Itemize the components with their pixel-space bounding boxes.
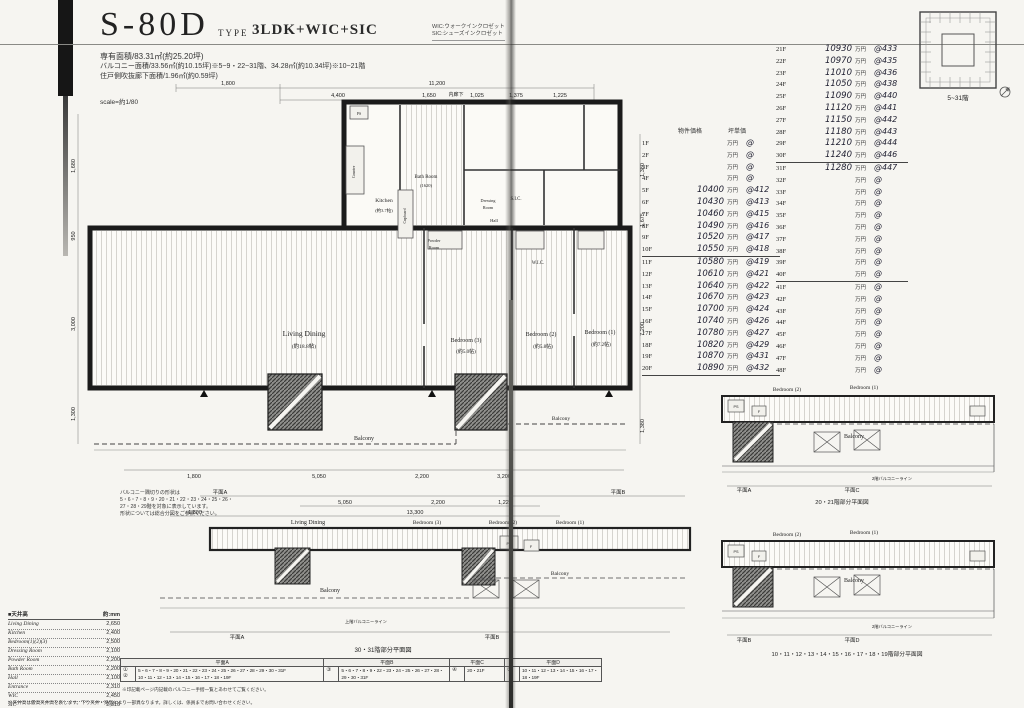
plane-b-mark: ③ bbox=[324, 667, 339, 682]
floor-label: 36F bbox=[776, 224, 798, 231]
plane-a-floors: 5・6・7・8・9・20・21・22・23・24・25・26・27・28・29・… bbox=[136, 667, 324, 682]
price-value: 11150 bbox=[798, 115, 855, 125]
currency-label: 万円 bbox=[727, 186, 746, 194]
tsubo-unit-price: @419 bbox=[746, 257, 780, 266]
plane-c-floors: 20・21F bbox=[465, 667, 505, 682]
floor-label: 45F bbox=[776, 331, 798, 338]
tsubo-unit-price: @444 bbox=[874, 138, 908, 147]
tsubo-unit-price: @431 bbox=[746, 351, 780, 360]
price-value: 10490 bbox=[664, 221, 727, 231]
price-value: 10520 bbox=[664, 232, 727, 242]
price-value: 10400 bbox=[664, 185, 727, 195]
svg-text:1,225: 1,225 bbox=[553, 93, 567, 99]
ceiling-room-name: Kitchen bbox=[8, 630, 25, 636]
ceiling-table-header: ■天井高 約:mm bbox=[8, 610, 120, 620]
currency-label: 万円 bbox=[855, 258, 874, 266]
floor-label: 26F bbox=[776, 105, 798, 112]
tsubo-unit-price: @ bbox=[874, 282, 908, 291]
currency-label: 万円 bbox=[727, 305, 746, 313]
price-row: 1F 万円 @ bbox=[642, 138, 780, 150]
bedroom2-label: Bedroom (2) bbox=[526, 331, 557, 338]
floor-label: 30F bbox=[776, 152, 798, 159]
price-row: 25F 11090 万円 @440 bbox=[776, 91, 908, 103]
tsubo-unit-price: @ bbox=[874, 341, 908, 350]
currency-label: 万円 bbox=[855, 270, 874, 278]
currency-label: 万円 bbox=[727, 341, 746, 349]
svg-text:5,050: 5,050 bbox=[338, 500, 352, 506]
ps-label: PS bbox=[733, 405, 739, 409]
price-row: 9F 10520 万円 @417 bbox=[642, 232, 780, 244]
svg-text:平面B: 平面B bbox=[611, 489, 626, 496]
ceiling-room-name: Dressing Room bbox=[8, 648, 42, 654]
main-floor-plan: 1,800 11,200 4,400 1,650 1,025 1,375 1,2… bbox=[64, 74, 648, 494]
price-row: 4F 万円 @ bbox=[642, 173, 780, 185]
currency-label: 万円 bbox=[727, 151, 746, 159]
floor-label: 28F bbox=[776, 129, 798, 136]
balcony-label-right: Balcony bbox=[552, 416, 571, 422]
price-row: 39F 万円 @ bbox=[776, 257, 908, 269]
price-row: 13F 10640 万円 @422 bbox=[642, 281, 780, 293]
compass-icon bbox=[1000, 87, 1010, 97]
corridor-label: 内廊下 bbox=[448, 91, 463, 98]
tsubo-unit-price: @ bbox=[746, 138, 780, 147]
partial-plan-caption: 30・31階部分平面図 bbox=[354, 646, 411, 654]
plan-code-title: S-80D bbox=[100, 6, 209, 44]
currency-label: 万円 bbox=[855, 235, 874, 243]
floor-label: 47F bbox=[776, 355, 798, 362]
tsubo-unit-price: @ bbox=[874, 246, 908, 255]
tsubo-unit-price: @426 bbox=[746, 316, 780, 325]
price-row: 16F 10740 万円 @426 bbox=[642, 316, 780, 328]
counter-label: Counter bbox=[352, 165, 356, 178]
tsubo-unit-price: @ bbox=[874, 222, 908, 231]
bedroom3-label: Bedroom (3) bbox=[451, 337, 482, 344]
price-value: 10430 bbox=[664, 197, 727, 207]
ceiling-room-name: Hall bbox=[8, 675, 18, 681]
currency-label: 万円 bbox=[727, 293, 746, 301]
svg-text:950: 950 bbox=[71, 231, 77, 240]
price-value: 10970 bbox=[798, 56, 855, 66]
floor-label: 24F bbox=[776, 81, 798, 88]
price-row: 46F 万円 @ bbox=[776, 341, 908, 353]
tsubo-unit-price: @ bbox=[874, 210, 908, 219]
currency-label: 万円 bbox=[855, 247, 874, 255]
svg-text:11,200: 11,200 bbox=[429, 81, 445, 87]
wic-label: W.I.C. bbox=[532, 261, 544, 266]
bedroom2-size: (約5.8帖) bbox=[533, 343, 553, 350]
price-value: 11120 bbox=[798, 103, 855, 113]
currency-label: 万円 bbox=[727, 210, 746, 218]
dressing-room-label2: Room bbox=[483, 205, 494, 210]
currency-label: 万円 bbox=[855, 295, 874, 303]
price-row: 37F 万円 @ bbox=[776, 234, 908, 246]
bathroom-label: Bath Room bbox=[415, 175, 438, 180]
svg-text:Bedroom (1): Bedroom (1) bbox=[850, 384, 878, 391]
svg-text:Bedroom (3): Bedroom (3) bbox=[413, 519, 441, 526]
currency-label: 万円 bbox=[855, 199, 874, 207]
currency-label: 万円 bbox=[727, 139, 746, 147]
tsubo-unit-price: @413 bbox=[746, 197, 780, 206]
currency-label: 万円 bbox=[727, 364, 746, 372]
price-row: 8F 10490 万円 @416 bbox=[642, 221, 780, 233]
circled-number: ② bbox=[123, 673, 131, 679]
floor-label: 34F bbox=[776, 200, 798, 207]
currency-label: 万円 bbox=[855, 92, 874, 100]
currency-label: 万円 bbox=[727, 258, 746, 266]
ceiling-height-value: 2,400 bbox=[106, 630, 120, 636]
currency-label: 万円 bbox=[727, 233, 746, 241]
price-row: 45F 万円 @ bbox=[776, 329, 908, 341]
exclusive-area: 専有面積/83.31㎡(約25.20坪) bbox=[100, 52, 365, 62]
partial-plan-20-21: Bedroom (2) Bedroom (1) Balcony PS F 2階バ… bbox=[702, 380, 1020, 516]
svg-text:Bedroom (2): Bedroom (2) bbox=[773, 386, 801, 393]
ceiling-row: Powder Room 2,200 bbox=[8, 657, 120, 666]
currency-label: 万円 bbox=[727, 174, 746, 182]
ceiling-height-value: 2,100 bbox=[106, 675, 120, 681]
plane-a-marks: ① ② bbox=[121, 667, 136, 682]
ceiling-table-unit: 約:mm bbox=[103, 610, 120, 618]
tsubo-unit-price: @ bbox=[746, 150, 780, 159]
price-row: 30F 11240 万円 @446 bbox=[776, 150, 908, 163]
tsubo-unit-price: @418 bbox=[746, 244, 780, 253]
price-row: 19F 10870 万円 @431 bbox=[642, 351, 780, 363]
powder-room-label: Powder bbox=[428, 238, 441, 243]
floor-label: 44F bbox=[776, 319, 798, 326]
powder-room-label2: Room bbox=[429, 245, 440, 250]
price-row: 36F 万円 @ bbox=[776, 222, 908, 234]
svg-text:平面A: 平面A bbox=[737, 487, 752, 494]
sic-legend-line: SIC:シューズインクロゼット bbox=[432, 31, 505, 38]
site-key-plan: 5~31階 bbox=[896, 4, 1020, 110]
tsubo-unit-price: @421 bbox=[746, 269, 780, 278]
price-value: 10700 bbox=[664, 304, 727, 314]
currency-label: 万円 bbox=[855, 354, 874, 362]
price-row: 14F 10670 万円 @423 bbox=[642, 292, 780, 304]
currency-label: 万円 bbox=[855, 80, 874, 88]
price-row: 15F 10700 万円 @424 bbox=[642, 304, 780, 316]
currency-label: 万円 bbox=[855, 164, 874, 172]
wall-marker-triangles bbox=[200, 390, 613, 397]
price-row: 11F 10580 万円 @419 bbox=[642, 257, 780, 269]
price-row: 10F 10550 万円 @418 bbox=[642, 244, 780, 257]
tsubo-unit-price: @ bbox=[874, 306, 908, 315]
svg-text:1,650: 1,650 bbox=[422, 93, 436, 99]
partial-plan-30-31: 平面A 平面B 5,050 2,200 1,225 1,800 13,300 L… bbox=[140, 486, 700, 658]
ceiling-room-name: Entrance bbox=[8, 684, 28, 690]
partial-wall-band bbox=[210, 528, 690, 550]
svg-text:Living Dining: Living Dining bbox=[291, 520, 325, 526]
page-fold-shadow bbox=[509, 300, 513, 708]
ps-label: PS bbox=[733, 550, 739, 554]
bathroom-size: (1620) bbox=[420, 183, 432, 188]
svg-text:7,200: 7,200 bbox=[640, 322, 646, 336]
ceiling-height-value: 2,100 bbox=[106, 648, 120, 654]
currency-label: 万円 bbox=[855, 139, 874, 147]
price-row: 26F 11120 万円 @441 bbox=[776, 103, 908, 115]
tsubo-unit-price: @422 bbox=[746, 281, 780, 290]
balcony-pillar bbox=[733, 422, 773, 462]
site-inner-core bbox=[942, 34, 974, 66]
svg-text:1,380: 1,380 bbox=[640, 163, 646, 177]
currency-label: 万円 bbox=[855, 69, 874, 77]
balcony-line-note: 2階バルコニーライン bbox=[872, 475, 912, 482]
plane-b-header: 平面B bbox=[324, 659, 450, 667]
price-table-header: 物件価格 坪単価 bbox=[642, 126, 780, 135]
ceiling-row: Dressing Room 2,100 bbox=[8, 648, 120, 657]
svg-text:1,300: 1,300 bbox=[71, 407, 77, 421]
tsubo-unit-price: @438 bbox=[874, 79, 908, 88]
price-value: 10930 bbox=[798, 44, 855, 54]
tsubo-unit-price: @ bbox=[874, 365, 908, 374]
partial-bottom-plane-labels: 平面A 平面C bbox=[737, 487, 860, 494]
price-value: 10460 bbox=[664, 209, 727, 219]
currency-label: 万円 bbox=[855, 128, 874, 136]
price-row: 35F 万円 @ bbox=[776, 210, 908, 222]
price-value: 10780 bbox=[664, 328, 727, 338]
svg-text:2,200: 2,200 bbox=[415, 474, 429, 480]
floor-label: 35F bbox=[776, 212, 798, 219]
plane-d-header: 平面D bbox=[505, 659, 602, 667]
bedroom3-size: (約5.0帖) bbox=[456, 348, 476, 355]
price-row: 24F 11050 万円 @438 bbox=[776, 79, 908, 91]
tsubo-unit-price: @ bbox=[746, 173, 780, 182]
price-value: 10550 bbox=[664, 244, 727, 254]
price-value: 10820 bbox=[664, 340, 727, 350]
partial-bottom-plane-labels: 平面A 平面B bbox=[230, 634, 500, 641]
price-value: 10890 bbox=[664, 363, 727, 373]
living-dining-label: Living Dining bbox=[283, 329, 326, 338]
tsubo-unit-price: @ bbox=[874, 317, 908, 326]
svg-text:1,025: 1,025 bbox=[470, 93, 484, 99]
ceiling-height-value: 2,650 bbox=[106, 621, 120, 627]
svg-text:平面C: 平面C bbox=[845, 487, 860, 494]
ps-label: PS bbox=[357, 112, 361, 116]
currency-label: 万円 bbox=[727, 222, 746, 230]
living-dining-size: (約18.8帖) bbox=[292, 342, 316, 350]
price-rows-left: 1F 万円 @ 2F 万円 @ 3F 万円 @ bbox=[642, 138, 780, 376]
price-row: 41F 万円 @ bbox=[776, 282, 908, 294]
wic-legend-line: WIC:ウォークインクロゼット bbox=[432, 24, 505, 31]
ceiling-room-name: WIC bbox=[8, 693, 18, 699]
price-value: 10610 bbox=[664, 269, 727, 279]
tsubo-unit-price: @412 bbox=[746, 185, 780, 194]
plane-d-floors: 10・11・12・13・14・15・16・17・18・19F bbox=[520, 667, 602, 682]
svg-text:1,680: 1,680 bbox=[71, 159, 77, 173]
plane-c-mark: ④ bbox=[450, 667, 465, 682]
svg-text:1,800: 1,800 bbox=[221, 81, 235, 87]
price-header-label: 物件価格 bbox=[678, 126, 702, 135]
currency-label: 万円 bbox=[727, 352, 746, 360]
tsubo-unit-price: @ bbox=[874, 329, 908, 338]
tsubo-unit-price: @ bbox=[874, 175, 908, 184]
currency-label: 万円 bbox=[727, 163, 746, 171]
price-rows-right: 21F 10930 万円 @433 22F 10970 万円 @435 23F … bbox=[776, 44, 908, 376]
currency-label: 万円 bbox=[855, 188, 874, 196]
svg-text:Balcony: Balcony bbox=[551, 571, 570, 577]
floor-label: 38F bbox=[776, 248, 798, 255]
price-row: 6F 10430 万円 @413 bbox=[642, 197, 780, 209]
currency-label: 万円 bbox=[855, 342, 874, 350]
site-plan-caption: 5~31階 bbox=[947, 93, 969, 102]
svg-text:平面D: 平面D bbox=[845, 637, 860, 644]
price-row: 33F 万円 @ bbox=[776, 187, 908, 199]
floor-label: 29F bbox=[776, 140, 798, 147]
tsubo-unit-price: @423 bbox=[746, 292, 780, 301]
price-value: 10870 bbox=[664, 351, 727, 361]
svg-text:1,380: 1,380 bbox=[640, 419, 646, 433]
price-row: 21F 10930 万円 @433 bbox=[776, 44, 908, 56]
plane-b-floors: 5・6・7・8・9・22・23・24・25・26・27・28・29・30・31F bbox=[339, 667, 450, 682]
upper-balcony-line-note: 上階バルコニーライン bbox=[345, 618, 387, 625]
ceiling-height-value: 2,310 bbox=[106, 684, 120, 690]
ceiling-row: Kitchen 2,400 bbox=[8, 630, 120, 639]
currency-label: 万円 bbox=[855, 366, 874, 374]
price-row: 3F 万円 @ bbox=[642, 162, 780, 174]
floor-label: 41F bbox=[776, 284, 798, 291]
plane-c-header: 平面C bbox=[450, 659, 505, 667]
ceiling-height-value: 2,450 bbox=[106, 693, 120, 699]
kitchen-size: (約3.7帖) bbox=[375, 207, 393, 214]
currency-label: 万円 bbox=[855, 330, 874, 338]
tsubo-unit-price: @416 bbox=[746, 221, 780, 230]
tsubo-unit-price: @ bbox=[874, 269, 908, 278]
tsubo-unit-price: @447 bbox=[874, 163, 908, 172]
tsubo-unit-price: @427 bbox=[746, 328, 780, 337]
svg-text:Bedroom (1): Bedroom (1) bbox=[850, 529, 878, 536]
tsubo-unit-price: @ bbox=[874, 198, 908, 207]
scanned-floorplan-page: S-80D TYPE 3LDK+WIC+SIC 専有面積/83.31㎡(約25.… bbox=[0, 0, 1024, 708]
currency-label: 万円 bbox=[855, 104, 874, 112]
price-row: 5F 10400 万円 @412 bbox=[642, 185, 780, 197]
type-label: TYPE bbox=[218, 28, 249, 38]
currency-label: 万円 bbox=[855, 307, 874, 315]
svg-text:1,800: 1,800 bbox=[187, 474, 201, 480]
svg-text:3,000: 3,000 bbox=[71, 317, 77, 331]
currency-label: 万円 bbox=[727, 245, 746, 253]
ceiling-height-value: 2,200 bbox=[106, 657, 120, 663]
partial-dim-labels: 平面A 平面B 5,050 2,200 1,225 1,800 13,300 bbox=[188, 489, 626, 516]
partial-bottom-plane-labels: 平面B 平面D bbox=[737, 637, 860, 644]
circled-number: ④ bbox=[452, 667, 460, 673]
price-row: 2F 万円 @ bbox=[642, 150, 780, 162]
floor-label: 21F bbox=[776, 46, 798, 53]
ceiling-rows: Living Dining 2,650 Kitchen 2,400 Bedroo… bbox=[8, 621, 120, 708]
abbreviation-legend: WIC:ウォークインクロゼット SIC:シューズインクロゼット bbox=[432, 24, 505, 41]
svg-text:5,050: 5,050 bbox=[312, 474, 326, 480]
svg-text:1,675: 1,675 bbox=[640, 213, 646, 227]
price-row: 28F 11180 万円 @443 bbox=[776, 127, 908, 139]
svg-text:平面B: 平面B bbox=[485, 634, 500, 641]
currency-label: 万円 bbox=[855, 45, 874, 53]
bedroom1-label: Bedroom (1) bbox=[585, 329, 616, 336]
tsubo-unit-price: @441 bbox=[874, 103, 908, 112]
price-row: 12F 10610 万円 @421 bbox=[642, 269, 780, 281]
currency-label: 万円 bbox=[727, 317, 746, 325]
price-value: 10640 bbox=[664, 281, 727, 291]
floor-label: 25F bbox=[776, 93, 798, 100]
price-row: 40F 万円 @ bbox=[776, 269, 908, 282]
currency-label: 万円 bbox=[855, 57, 874, 65]
ceiling-height-table: ■天井高 約:mm Living Dining 2,650 Kitchen 2,… bbox=[8, 610, 120, 708]
floor-label: 22F bbox=[776, 58, 798, 65]
tsubo-unit-price: @442 bbox=[874, 115, 908, 124]
price-value: 11180 bbox=[798, 127, 855, 137]
balcony-area: バルコニー面積/33.56㎡(約10.15坪)※5~9・22~31階、34.28… bbox=[100, 62, 365, 72]
unit-price-header-label: 坪単価 bbox=[728, 126, 746, 135]
balcony-pillar bbox=[275, 548, 495, 585]
partial-plan-caption: 10・11・12・13・14・15・16・17・18・19階部分平面図 bbox=[771, 650, 922, 658]
price-value: 10740 bbox=[664, 316, 727, 326]
currency-label: 万円 bbox=[727, 329, 746, 337]
price-row: 17F 10780 万円 @427 bbox=[642, 328, 780, 340]
price-table-floors-1-20: 物件価格 坪単価 1F 万円 @ 2F 万円 @ bbox=[642, 126, 780, 376]
tsubo-unit-price: @ bbox=[874, 234, 908, 243]
tsubo-unit-price: @ bbox=[874, 294, 908, 303]
floor-label: 40F bbox=[776, 271, 798, 278]
price-row: 22F 10970 万円 @435 bbox=[776, 56, 908, 68]
circled-number: ③ bbox=[326, 667, 334, 673]
plane-a-header: 平面A bbox=[121, 659, 324, 667]
floor-label: 23F bbox=[776, 70, 798, 77]
svg-text:1,800: 1,800 bbox=[188, 510, 202, 516]
ceiling-table-title: ■天井高 bbox=[8, 610, 28, 618]
price-value: 11210 bbox=[798, 138, 855, 148]
price-value: 10580 bbox=[664, 257, 727, 267]
currency-label: 万円 bbox=[855, 211, 874, 219]
ceiling-row: Living Dining 2,650 bbox=[8, 621, 120, 630]
balcony-lines bbox=[160, 578, 685, 632]
price-row: 23F 11010 万円 @436 bbox=[776, 68, 908, 80]
tsubo-unit-price: @417 bbox=[746, 232, 780, 241]
tsubo-unit-price: @435 bbox=[874, 56, 908, 65]
plane-table-note: ※印記載ページ内記載のバルコニー手摺一覧とあわせてご覧ください。 bbox=[122, 687, 269, 693]
floor-label: 27F bbox=[776, 117, 798, 124]
tsubo-unit-price: @424 bbox=[746, 304, 780, 313]
price-row: 18F 10820 万円 @429 bbox=[642, 340, 780, 352]
svg-text:平面B: 平面B bbox=[737, 637, 752, 644]
balcony-pillar bbox=[733, 567, 773, 607]
currency-label: 万円 bbox=[727, 198, 746, 206]
hall-label: Hall bbox=[490, 218, 498, 223]
currency-label: 万円 bbox=[855, 283, 874, 291]
price-row: 42F 万円 @ bbox=[776, 294, 908, 306]
tsubo-unit-price: @415 bbox=[746, 209, 780, 218]
svg-text:2,200: 2,200 bbox=[431, 500, 445, 506]
price-value: 11280 bbox=[798, 163, 855, 173]
currency-label: 万円 bbox=[855, 318, 874, 326]
price-row: 27F 11150 万円 @442 bbox=[776, 115, 908, 127]
tsubo-unit-price: @ bbox=[874, 353, 908, 362]
ceiling-height-value: 2,500 bbox=[106, 639, 120, 645]
floor-label: 46F bbox=[776, 343, 798, 350]
price-table-floors-21-48: 21F 10930 万円 @433 22F 10970 万円 @435 23F … bbox=[776, 44, 908, 376]
price-row: 34F 万円 @ bbox=[776, 198, 908, 210]
price-row: 47F 万円 @ bbox=[776, 353, 908, 365]
svg-text:平面A: 平面A bbox=[213, 489, 228, 496]
svg-text:Bedroom (1): Bedroom (1) bbox=[556, 519, 584, 526]
svg-text:Balcony: Balcony bbox=[320, 588, 340, 594]
floor-label: 42F bbox=[776, 296, 798, 303]
floor-label: 33F bbox=[776, 189, 798, 196]
ceiling-height-value: 2,200 bbox=[106, 666, 120, 672]
partial-plan-caption: 20・21階部分平面図 bbox=[815, 498, 869, 506]
price-row: 43F 万円 @ bbox=[776, 306, 908, 318]
tsubo-unit-price: @ bbox=[746, 162, 780, 171]
ceiling-room-name: Bath Room bbox=[8, 666, 33, 672]
currency-label: 万円 bbox=[727, 270, 746, 278]
site-unit-dividers bbox=[920, 12, 996, 88]
currency-label: 万円 bbox=[855, 223, 874, 231]
